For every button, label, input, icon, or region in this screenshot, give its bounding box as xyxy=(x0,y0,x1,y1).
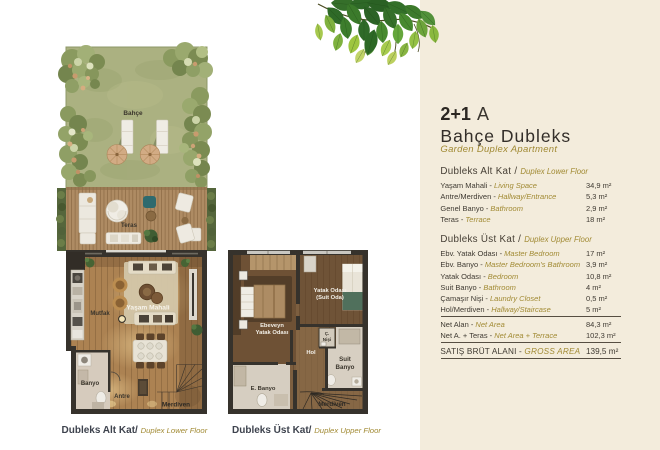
svg-text:Banyo: Banyo xyxy=(336,364,355,371)
svg-text:Merdiven: Merdiven xyxy=(162,402,190,409)
svg-text:Yatak Odası: Yatak Odası xyxy=(314,288,347,294)
svg-text:Nişi: Nişi xyxy=(323,337,331,342)
svg-text:(Suit Oda): (Suit Oda) xyxy=(316,295,344,301)
svg-text:Teras: Teras xyxy=(121,222,138,229)
svg-text:Antre: Antre xyxy=(114,394,130,400)
svg-text:Mutfak: Mutfak xyxy=(90,311,110,317)
svg-text:Ç.: Ç. xyxy=(325,331,330,336)
svg-text:Merdiven: Merdiven xyxy=(318,401,345,408)
svg-text:E. Banyo: E. Banyo xyxy=(251,386,276,392)
svg-text:Yatak Odası: Yatak Odası xyxy=(256,330,289,336)
svg-text:Banyo: Banyo xyxy=(81,381,100,387)
svg-text:Ebeveyn: Ebeveyn xyxy=(260,323,284,329)
svg-text:Yaşam Mahali: Yaşam Mahali xyxy=(126,305,169,312)
svg-text:Hol: Hol xyxy=(306,350,316,356)
svg-text:Bahçe: Bahçe xyxy=(123,110,143,117)
svg-text:Suit: Suit xyxy=(339,356,351,363)
